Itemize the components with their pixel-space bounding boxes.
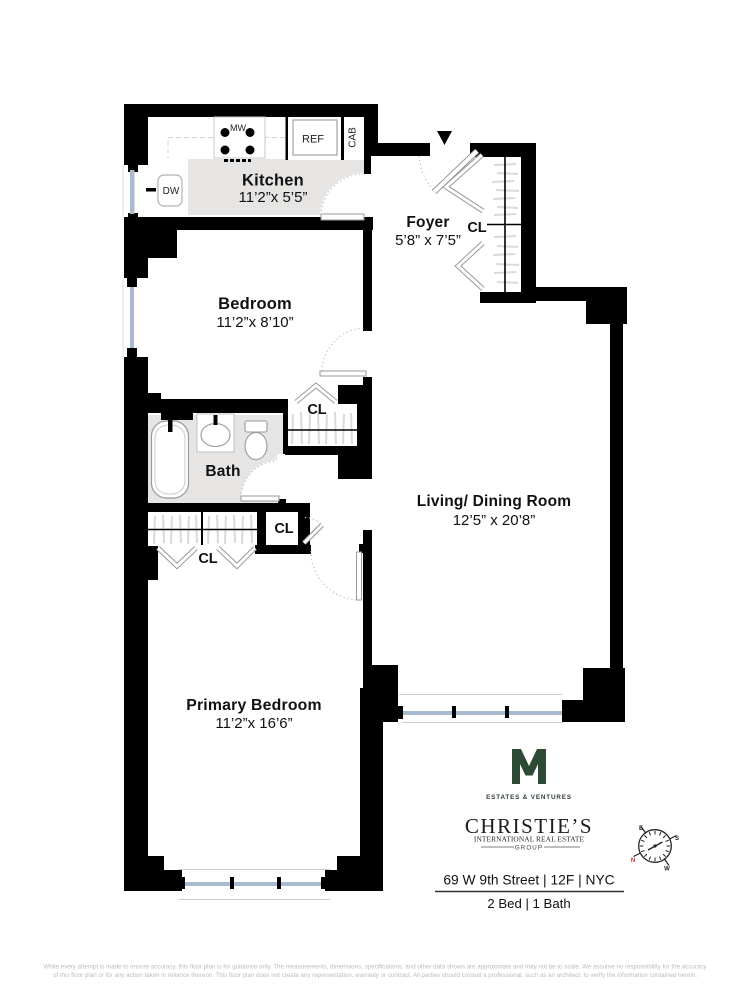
svg-text:CL: CL xyxy=(307,402,326,418)
svg-text:Bedroom: Bedroom xyxy=(218,295,292,313)
svg-text:DW: DW xyxy=(163,186,180,197)
svg-text:CL: CL xyxy=(274,521,293,537)
svg-text:12’5” x 20’8”: 12’5” x 20’8” xyxy=(453,512,536,529)
svg-text:2 Bed | 1 Bath: 2 Bed | 1 Bath xyxy=(487,896,570,911)
svg-text:11’2”x 16’6”: 11’2”x 16’6” xyxy=(215,715,292,732)
svg-text:Living/ Dining Room: Living/ Dining Room xyxy=(417,493,571,510)
svg-text:ESTATES & VENTURES: ESTATES & VENTURES xyxy=(486,794,572,801)
svg-text:S: S xyxy=(675,836,679,842)
svg-text:REF: REF xyxy=(302,134,324,146)
svg-text:11’2”x 5’5”: 11’2”x 5’5” xyxy=(239,189,308,206)
svg-text:Bath: Bath xyxy=(205,463,240,480)
svg-text:69 W 9th Street | 12F | NYC: 69 W 9th Street | 12F | NYC xyxy=(443,873,614,888)
svg-text:CL: CL xyxy=(198,551,217,567)
svg-text:CL: CL xyxy=(467,220,486,236)
svg-text:Kitchen: Kitchen xyxy=(242,172,304,190)
svg-text:Foyer: Foyer xyxy=(406,214,449,231)
svg-text:GROUP: GROUP xyxy=(515,845,543,852)
svg-text:MW: MW xyxy=(230,123,246,133)
svg-text:of this floor plan or for any: of this floor plan or for any action tak… xyxy=(53,972,697,979)
svg-text:E: E xyxy=(639,826,643,832)
svg-text:W: W xyxy=(664,867,670,873)
svg-text:5’8” x 7’5”: 5’8” x 7’5” xyxy=(395,232,461,249)
svg-text:Primary Bedroom: Primary Bedroom xyxy=(186,697,322,714)
svg-text:INTERNATIONAL REAL ESTATE: INTERNATIONAL REAL ESTATE xyxy=(474,835,585,844)
svg-text:N: N xyxy=(631,858,635,864)
svg-text:11’2”x 8’10”: 11’2”x 8’10” xyxy=(216,314,293,331)
svg-text:While every attempt is made to: While every attempt is made to ensure ac… xyxy=(44,964,708,971)
svg-text:CAB: CAB xyxy=(348,127,359,148)
